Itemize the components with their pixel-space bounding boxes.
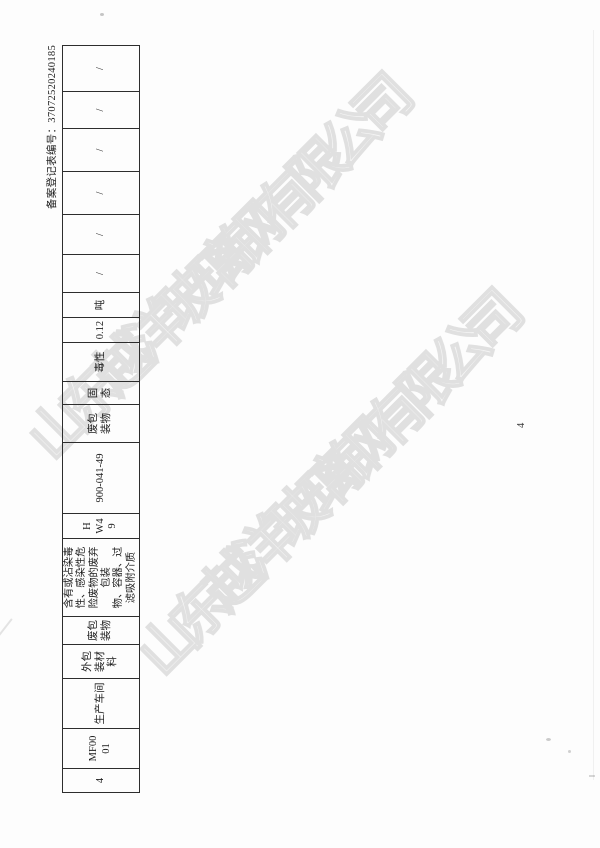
scan-speck [100,13,104,16]
table-cell: / [63,91,139,128]
table-cell: 吨 [63,292,139,317]
scan-speck [546,738,551,741]
table-cell: 生产车间 [63,678,139,728]
registration-number: 备案登记表编号：37072520240185 [44,45,59,209]
table-cell: 900-041-49 [63,442,139,513]
table-cell: MF00 01 [63,728,139,768]
scan-speck [589,775,595,777]
table-cell: 废包 装物 [63,404,139,442]
page-number: 4 [516,423,527,428]
scanned-page: 山东越洋玻璃钢有限公司 山东越洋玻璃钢有限公司 备案登记表编号：37072520… [0,0,600,848]
table-cell: 废包 装物 [63,616,139,644]
table-cell: / [63,128,139,171]
table-cell: 含有或沾染毒 性、感染性危 险废物的废弃 包装 物、容器、过 滤吸附介质 [63,538,139,616]
scan-edge-artifact [593,30,594,780]
table-row: 4MF00 01生产车间外包 装材 料废包 装物含有或沾染毒 性、感染性危 险废… [63,46,139,792]
table-cell: / [63,214,139,254]
table-cell: / [63,46,139,91]
waste-record-table: 4MF00 01生产车间外包 装材 料废包 装物含有或沾染毒 性、感染性危 险废… [62,45,140,793]
table-cell: 毒性 [63,342,139,381]
table-cell: 外包 装材 料 [63,644,139,678]
table-cell: H W4 9 [63,513,139,538]
table-cell: 4 [63,768,139,792]
table-cell: 0.12 [63,317,139,342]
table-cell: 固 态 [63,381,139,404]
table-cell: / [63,171,139,214]
table-cell: / [63,254,139,292]
scan-speck [568,750,571,753]
document-sheet: 备案登记表编号：37072520240185 4MF00 01生产车间外包 装材… [0,0,600,848]
